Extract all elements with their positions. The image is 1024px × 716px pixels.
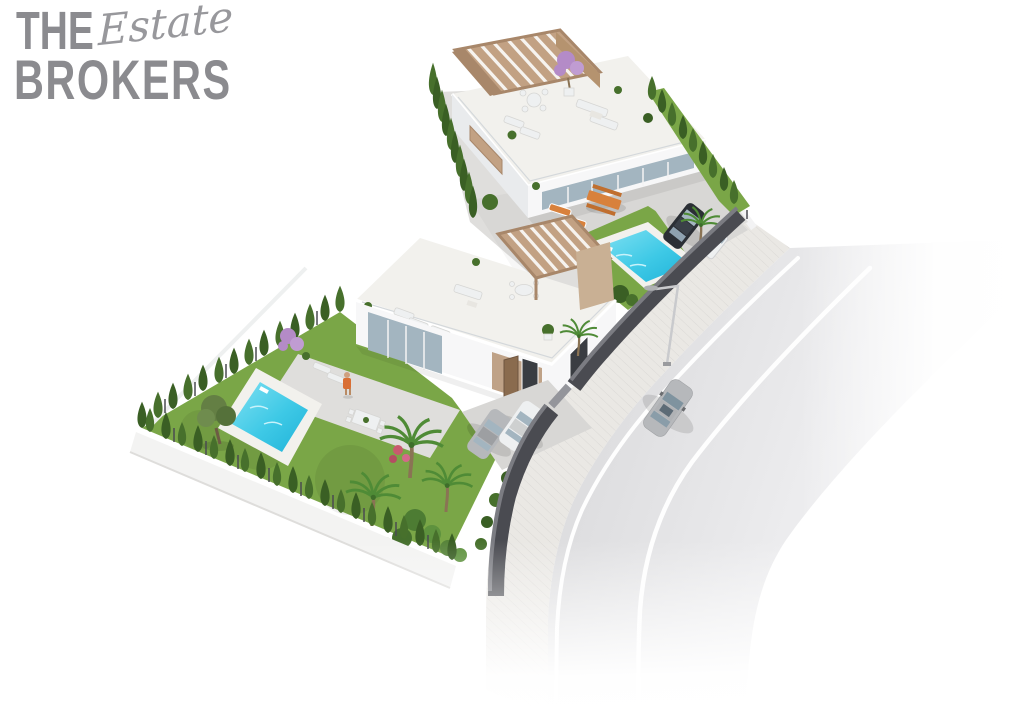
purple-flower-shrub bbox=[278, 328, 304, 351]
property-aerial-render bbox=[0, 0, 1024, 716]
bottom-fade bbox=[0, 540, 1024, 716]
page: THE Estate BROKERS bbox=[0, 0, 1024, 716]
right-fade bbox=[800, 140, 1024, 560]
